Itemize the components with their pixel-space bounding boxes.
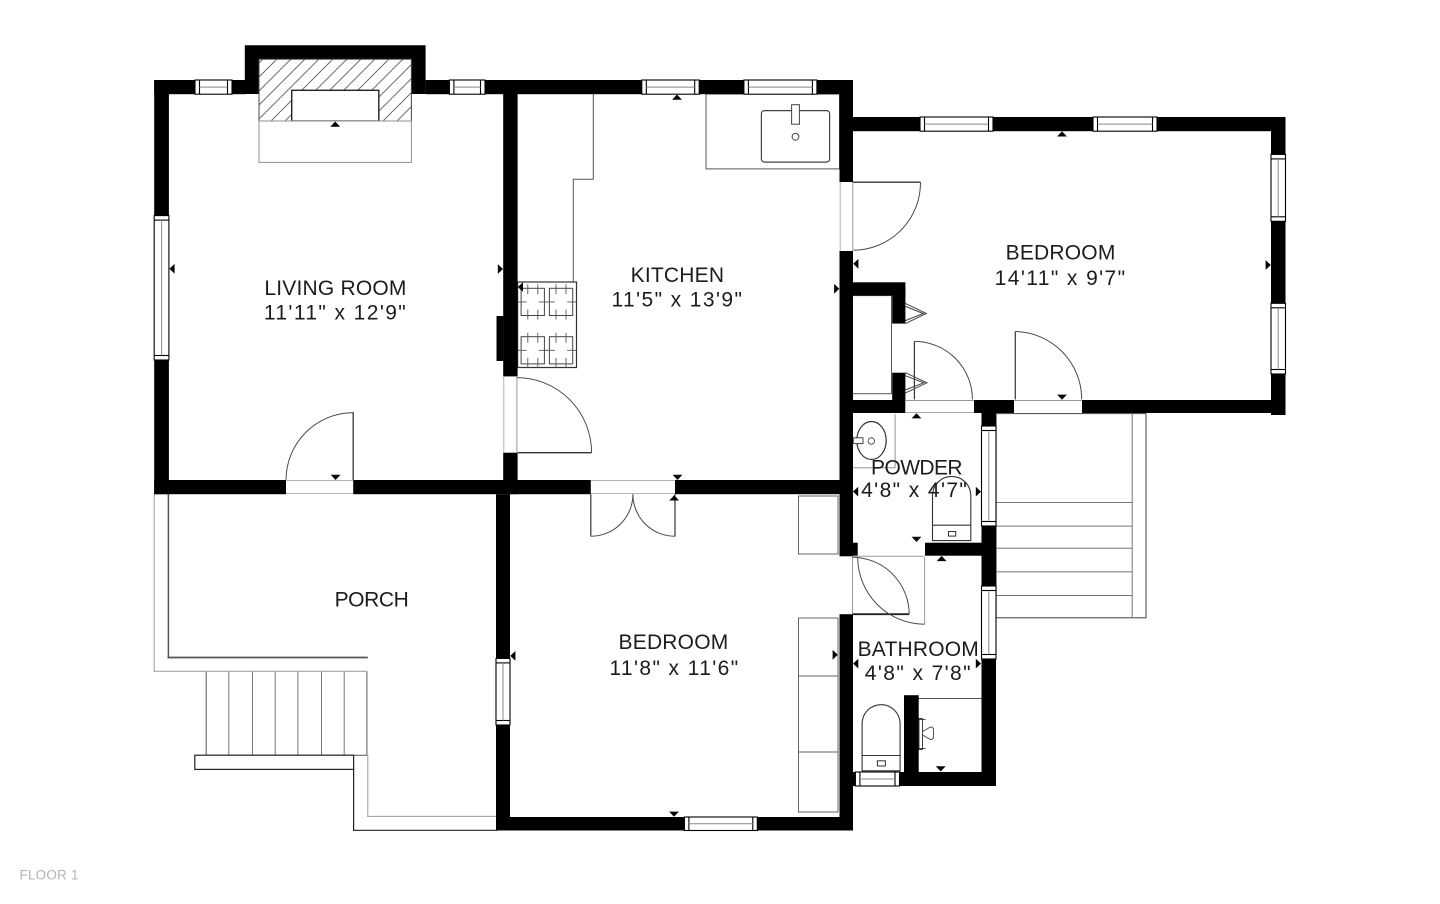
svg-text:POWDER: POWDER xyxy=(871,457,962,480)
svg-text:BEDROOM: BEDROOM xyxy=(1006,242,1116,265)
svg-text:BATHROOM: BATHROOM xyxy=(858,638,979,661)
svg-text:FLOOR 1: FLOOR 1 xyxy=(20,868,79,883)
svg-text:KITCHEN: KITCHEN xyxy=(631,264,725,287)
svg-text:11'5" x 13'9": 11'5" x 13'9" xyxy=(611,289,743,312)
svg-text:4'8" x 7'8": 4'8" x 7'8" xyxy=(865,662,972,685)
svg-text:4'8" x 4'7": 4'8" x 4'7" xyxy=(861,479,968,502)
svg-text:LIVING ROOM: LIVING ROOM xyxy=(264,277,406,300)
svg-text:11'8" x 11'6": 11'8" x 11'6" xyxy=(609,657,739,680)
svg-text:14'11" x 9'7": 14'11" x 9'7" xyxy=(995,267,1127,290)
svg-text:BEDROOM: BEDROOM xyxy=(619,631,729,654)
svg-text:11'11" x 12'9": 11'11" x 12'9" xyxy=(264,302,407,325)
svg-text:PORCH: PORCH xyxy=(335,589,409,612)
